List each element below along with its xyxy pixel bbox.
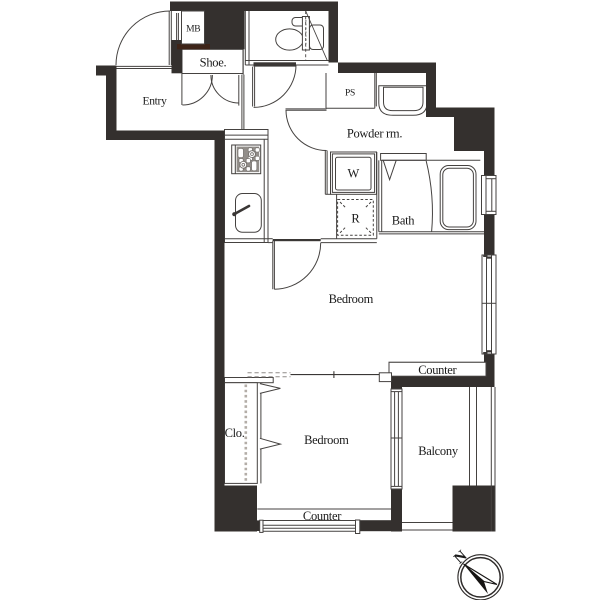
svg-text:PS: PS bbox=[345, 89, 355, 99]
svg-text:MB: MB bbox=[186, 25, 200, 35]
svg-text:R: R bbox=[351, 212, 360, 226]
svg-text:Shoe.: Shoe. bbox=[200, 56, 227, 70]
svg-text:W: W bbox=[347, 167, 359, 181]
svg-text:Counter: Counter bbox=[303, 509, 342, 523]
svg-text:Clo.: Clo. bbox=[225, 426, 245, 440]
svg-text:Bath: Bath bbox=[392, 214, 415, 228]
svg-text:Bedroom: Bedroom bbox=[304, 433, 349, 447]
svg-text:Counter: Counter bbox=[418, 363, 457, 377]
svg-text:Powder rm.: Powder rm. bbox=[347, 127, 403, 141]
svg-text:Entry: Entry bbox=[142, 96, 167, 108]
svg-text:Bedroom: Bedroom bbox=[329, 292, 374, 306]
svg-text:Balcony: Balcony bbox=[418, 444, 459, 458]
